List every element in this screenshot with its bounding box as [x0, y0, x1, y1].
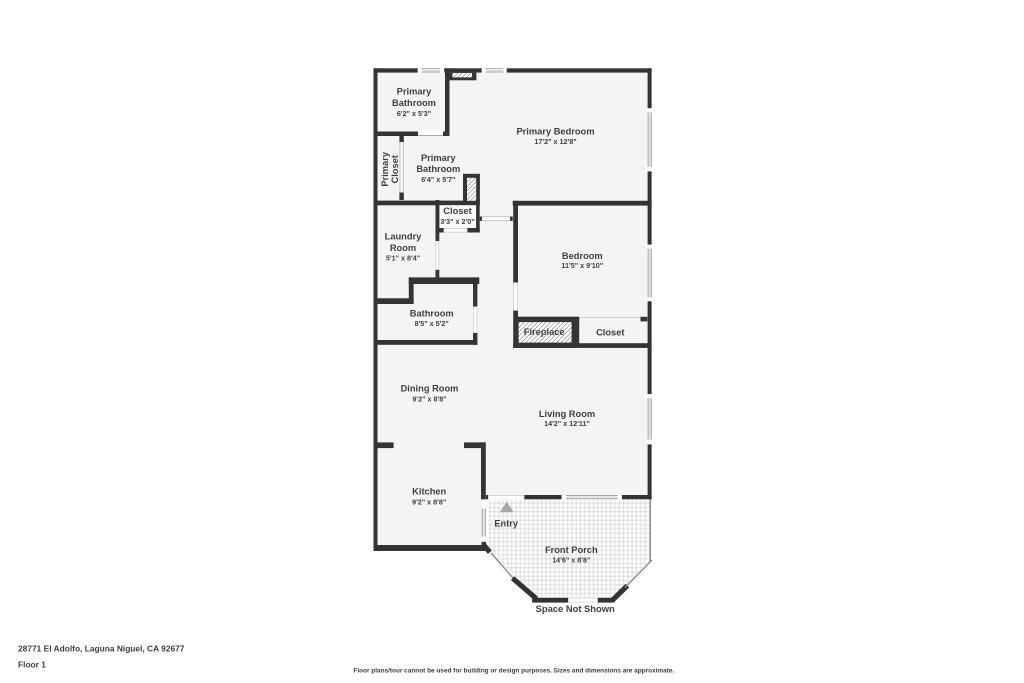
svg-text:Primary: Primary [421, 153, 456, 163]
svg-text:Closet: Closet [596, 328, 624, 338]
svg-text:11'5" x 9'10": 11'5" x 9'10" [561, 261, 603, 270]
svg-text:Living Room: Living Room [539, 409, 595, 419]
svg-text:14'2" x 12'11": 14'2" x 12'11" [544, 419, 590, 428]
svg-text:Closet: Closet [390, 155, 400, 183]
svg-text:9'2" x 8'8": 9'2" x 8'8" [412, 395, 446, 404]
svg-text:14'6" x 8'8": 14'6" x 8'8" [552, 555, 590, 564]
svg-text:Dining Room: Dining Room [401, 384, 459, 394]
svg-text:Primary: Primary [380, 151, 390, 186]
svg-text:Room: Room [390, 243, 416, 253]
svg-text:Entry: Entry [494, 518, 519, 528]
svg-text:Laundry: Laundry [385, 232, 423, 242]
svg-text:Fireplace: Fireplace [524, 327, 565, 337]
svg-text:17'2" x 12'8": 17'2" x 12'8" [534, 137, 576, 146]
svg-text:6'2" x 5'3": 6'2" x 5'3" [397, 109, 431, 118]
svg-text:Primary Bedroom: Primary Bedroom [516, 127, 594, 137]
svg-text:Bedroom: Bedroom [562, 251, 603, 261]
svg-text:Primary: Primary [397, 87, 432, 97]
svg-text:Floor 1: Floor 1 [18, 660, 46, 670]
svg-text:Bathroom: Bathroom [410, 308, 454, 318]
svg-text:Bathroom: Bathroom [416, 164, 460, 174]
svg-text:Kitchen: Kitchen [412, 487, 446, 497]
svg-text:3'3" x 2'0": 3'3" x 2'0" [440, 217, 474, 226]
svg-text:5'1" x 8'4": 5'1" x 8'4" [386, 253, 420, 262]
svg-text:28771 El Adolfo, Laguna Niguel: 28771 El Adolfo, Laguna Niguel, CA 92677 [18, 643, 185, 653]
svg-text:Front Porch: Front Porch [545, 545, 598, 555]
svg-text:9'2" x 8'8": 9'2" x 8'8" [412, 498, 446, 507]
svg-text:8'5" x 5'2": 8'5" x 5'2" [415, 319, 449, 328]
svg-text:Bathroom: Bathroom [392, 98, 436, 108]
svg-text:Floor plans/tour cannot be use: Floor plans/tour cannot be used for buil… [353, 667, 674, 674]
svg-text:6'4" x 5'7": 6'4" x 5'7" [421, 175, 455, 184]
svg-text:Closet: Closet [443, 206, 471, 216]
svg-text:Space Not Shown: Space Not Shown [536, 603, 615, 614]
